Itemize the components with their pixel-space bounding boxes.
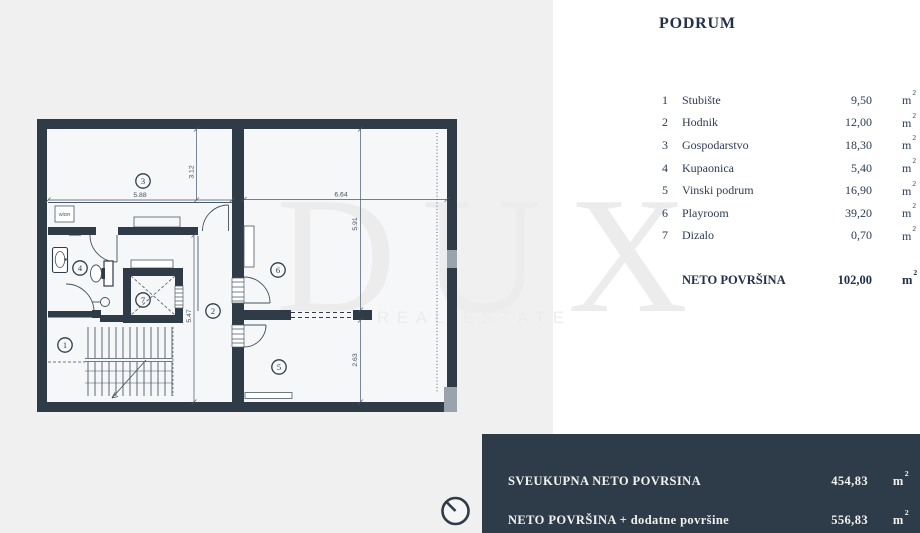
summary-row-with-extras: NETO POVRŠINA + dodatne površine 556,83 … xyxy=(508,511,908,529)
svg-text:3: 3 xyxy=(141,176,145,186)
svg-text:1: 1 xyxy=(63,340,67,350)
toilet-bowl xyxy=(91,265,102,282)
wall-below-wdr-right xyxy=(118,227,198,235)
legend-row: 5Vinski podrum16,90m2 xyxy=(652,179,920,202)
legend-total-row: NETO POVRŠINA 102,00 m2 xyxy=(652,269,920,291)
wall-pillar-top xyxy=(69,229,81,236)
svg-text:7: 7 xyxy=(141,295,145,305)
svg-text:5: 5 xyxy=(277,362,281,372)
legend-rows: 1Stubište9,50m2 2Hodnik12,00m2 3Gospodar… xyxy=(652,89,920,247)
wall-pillar-bottom xyxy=(92,310,101,318)
room5-window xyxy=(245,393,292,399)
wall-patch-right xyxy=(447,250,457,268)
dim-room5-height: 2.63 xyxy=(352,353,359,366)
legend-row: 2Hodnik12,00m2 xyxy=(652,112,920,135)
legend-row: 7Dizalo0,70m2 xyxy=(652,225,920,248)
page: W/DR xyxy=(0,0,920,533)
svg-text:2: 2 xyxy=(211,306,215,316)
dim-room6-height: 5.91 xyxy=(352,217,359,230)
total-value: 102,00 xyxy=(816,273,872,288)
middle-wall xyxy=(232,129,244,402)
dim-room3-height: 3.12 xyxy=(189,165,196,178)
toilet-tank xyxy=(104,261,113,286)
wdr-label: W/DR xyxy=(59,212,71,217)
dim-room3-width: 5.88 xyxy=(133,192,146,199)
summary-row-total: SVEUKUPNA NETO POVRSINA 454,83 m2 xyxy=(508,472,908,490)
dim-room6-width: 6.64 xyxy=(334,192,347,199)
clock-icon xyxy=(438,494,474,530)
summary-panel: SVEUKUPNA NETO POVRSINA 454,83 m2 NETO P… xyxy=(482,434,920,533)
floor-plan: W/DR xyxy=(30,110,470,420)
duct xyxy=(244,226,254,267)
legend-row: 6Playroom39,20m2 xyxy=(652,202,920,225)
wdr-label-box: W/DR xyxy=(55,206,74,222)
dim-corridor-height: 5.47 xyxy=(186,309,193,322)
legend-row: 4Kupaonica5,40m2 xyxy=(652,157,920,180)
total-label: NETO POVRŠINA xyxy=(682,273,816,288)
wall-patch-corner xyxy=(444,387,457,412)
legend-row: 3Gospodarstvo18,30m2 xyxy=(652,134,920,157)
page-title: PODRUM xyxy=(659,15,736,33)
svg-text:6: 6 xyxy=(276,265,280,275)
legend-row: 1Stubište9,50m2 xyxy=(652,89,920,112)
